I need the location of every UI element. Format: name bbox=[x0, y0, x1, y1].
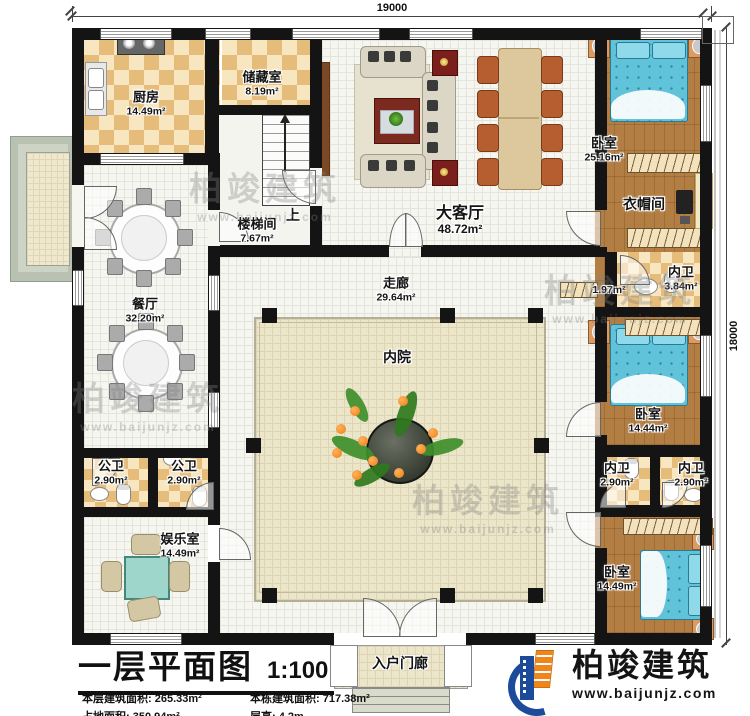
stat-item: 本栋建筑面积: 717.38m² bbox=[250, 690, 370, 706]
chair bbox=[165, 200, 181, 217]
dining-chair bbox=[477, 158, 499, 186]
game-table bbox=[124, 556, 170, 600]
sofa-cushion bbox=[368, 160, 379, 171]
room-name: 公卫 bbox=[94, 460, 127, 475]
stair-arrow-head bbox=[280, 114, 290, 123]
room-area: 14.49m² bbox=[597, 580, 636, 592]
wall bbox=[595, 307, 607, 402]
room-name: 卧室 bbox=[597, 566, 636, 581]
stair-up-label: 上 bbox=[286, 207, 300, 223]
room-label-bedroom-top: 卧室 25.16m² bbox=[584, 137, 623, 164]
wall bbox=[84, 448, 220, 458]
stat-label: 占地面积: bbox=[82, 711, 130, 716]
room-area: 2.90m² bbox=[600, 476, 633, 488]
corner-bracket bbox=[702, 16, 734, 44]
chair bbox=[131, 534, 161, 555]
room-name: 卧室 bbox=[628, 408, 667, 423]
room-area: 2.90m² bbox=[674, 476, 707, 488]
wall bbox=[595, 40, 607, 210]
room-area: 1.97m² bbox=[592, 284, 625, 296]
window bbox=[209, 392, 219, 428]
room-area: 14.49m² bbox=[160, 547, 199, 559]
stair-up-text: 上 bbox=[286, 207, 300, 223]
room-label-kitchen: 厨房 14.49m² bbox=[126, 91, 165, 118]
stat-item: 层高: 4.2m bbox=[250, 708, 370, 716]
chair bbox=[97, 354, 113, 371]
room-name: 走廊 bbox=[376, 277, 415, 292]
dimension-top-value: 19000 bbox=[377, 2, 408, 14]
sofa-cushion bbox=[404, 160, 415, 171]
dining-chair bbox=[477, 56, 499, 84]
dining-chair bbox=[477, 90, 499, 118]
chair bbox=[136, 270, 152, 287]
toilet bbox=[116, 484, 131, 505]
room-label-courtyard: 内院 bbox=[383, 349, 411, 365]
sofa-cushion bbox=[427, 122, 438, 133]
stat-label: 层高: bbox=[250, 711, 276, 716]
porch-pier-right bbox=[444, 645, 472, 687]
brand-logo: 柏竣建筑 www.baijunjz.com bbox=[508, 644, 717, 706]
window bbox=[701, 545, 711, 607]
stat-item: 占地面积: 350.94m² bbox=[82, 708, 250, 716]
orange-fruit bbox=[394, 468, 404, 478]
sofa-cushion bbox=[368, 51, 379, 62]
room-label-bath-bottom-right: 内卫 2.90m² bbox=[674, 462, 707, 489]
room-area: 48.72m² bbox=[436, 223, 484, 237]
brand-url[interactable]: www.baijunjz.com bbox=[572, 685, 717, 701]
round-table-ring bbox=[121, 215, 167, 261]
dimension-right-value: 18000 bbox=[728, 321, 740, 352]
stat-label: 本栋建筑面积: bbox=[250, 693, 320, 705]
bed-sheet bbox=[611, 374, 685, 403]
sink bbox=[90, 487, 109, 501]
room-name: 内卫 bbox=[674, 462, 707, 477]
wall bbox=[605, 252, 617, 307]
column bbox=[528, 588, 543, 603]
chair bbox=[169, 561, 190, 592]
wall bbox=[219, 245, 389, 257]
stat-value: 717.38m² bbox=[323, 693, 370, 705]
orange-fruit bbox=[358, 436, 368, 446]
room-label-bath-bottom-left: 内卫 2.90m² bbox=[600, 462, 633, 489]
chair bbox=[179, 354, 195, 371]
room-area: 8.19m² bbox=[242, 85, 281, 97]
right-sill-line bbox=[714, 30, 716, 638]
room-name: 楼梯间 bbox=[237, 218, 276, 233]
window bbox=[701, 85, 711, 142]
column bbox=[262, 588, 277, 603]
room-label-stairwell: 楼梯间 7.67m² bbox=[237, 218, 276, 245]
kitchen-sink bbox=[88, 68, 104, 88]
brand-name: 柏竣建筑 bbox=[572, 649, 717, 681]
column bbox=[528, 308, 543, 323]
chair bbox=[107, 258, 123, 275]
orange-fruit bbox=[416, 444, 426, 454]
pillow bbox=[652, 42, 686, 59]
long-dining-table bbox=[498, 48, 542, 190]
dining-chair bbox=[541, 56, 563, 84]
orange-fruit bbox=[352, 470, 362, 480]
wall bbox=[205, 40, 219, 153]
room-label-dining: 餐厅 32.20m² bbox=[125, 298, 164, 325]
room-name: 餐厅 bbox=[125, 298, 164, 313]
kitchen-sink bbox=[88, 90, 104, 110]
chair bbox=[109, 383, 125, 400]
window bbox=[701, 335, 711, 397]
plan-title: 一层平面图 bbox=[78, 640, 253, 688]
column bbox=[246, 438, 261, 453]
room-area: 2.90m² bbox=[94, 474, 127, 486]
window bbox=[100, 29, 172, 39]
cloak-wardrobe-item2 bbox=[680, 216, 690, 224]
chair bbox=[177, 229, 193, 246]
column bbox=[440, 308, 455, 323]
room-label-public-bath-right: 公卫 2.90m² bbox=[167, 460, 200, 487]
orange-fruit bbox=[336, 424, 346, 434]
wall bbox=[72, 28, 84, 645]
sofa-cushion bbox=[427, 142, 438, 153]
closet-bedroom-mid bbox=[625, 319, 711, 336]
chair bbox=[167, 325, 183, 342]
door-opening bbox=[72, 185, 84, 247]
room-area: 32.20m² bbox=[125, 312, 164, 324]
room-name: 公卫 bbox=[167, 460, 200, 475]
sofa-cushion bbox=[386, 160, 397, 171]
column bbox=[440, 588, 455, 603]
bed-sheet bbox=[611, 90, 685, 119]
wall bbox=[595, 307, 712, 317]
stair-arrow-line bbox=[284, 122, 286, 172]
stat-item: 本层建筑面积: 265.33m² bbox=[82, 690, 250, 706]
side-table-lamp bbox=[440, 168, 448, 176]
chair bbox=[109, 325, 125, 342]
orange-fruit bbox=[368, 456, 378, 466]
room-area: 29.64m² bbox=[376, 291, 415, 303]
room-name: 内院 bbox=[383, 349, 411, 365]
room-name: 内卫 bbox=[664, 266, 697, 281]
window bbox=[209, 275, 219, 311]
logo-building-windows-icon bbox=[523, 660, 526, 694]
chair bbox=[165, 258, 181, 275]
room-label-public-bath-left: 公卫 2.90m² bbox=[94, 460, 127, 487]
room-label-corridor: 走廊 29.64m² bbox=[376, 277, 415, 304]
patio-inner bbox=[26, 152, 70, 266]
room-name: 大客厅 bbox=[436, 205, 484, 223]
room-name: 娱乐室 bbox=[160, 533, 199, 548]
chair bbox=[136, 188, 152, 205]
stat-value: 4.2m bbox=[279, 711, 304, 716]
window bbox=[205, 29, 251, 39]
sofa-cushion bbox=[427, 100, 438, 111]
room-area: 14.44m² bbox=[628, 422, 667, 434]
logo-building-blue-icon bbox=[520, 656, 534, 700]
wall bbox=[310, 40, 322, 257]
closet-cloakroom-bottom bbox=[627, 228, 709, 248]
window bbox=[73, 270, 83, 306]
pillow bbox=[616, 42, 650, 59]
wall bbox=[595, 445, 712, 457]
dining-chair bbox=[541, 90, 563, 118]
room-label-porch: 入户门廊 bbox=[372, 655, 428, 671]
wall bbox=[219, 105, 310, 115]
pass-window bbox=[100, 154, 184, 164]
wall bbox=[208, 562, 220, 633]
window bbox=[409, 29, 473, 39]
room-area: 14.49m² bbox=[126, 105, 165, 117]
stat-value: 265.33m² bbox=[155, 693, 202, 705]
room-label-hall: 1.97m² bbox=[592, 284, 625, 296]
room-area: 25.16m² bbox=[584, 151, 623, 163]
room-area: 2.90m² bbox=[167, 474, 200, 486]
window bbox=[535, 634, 595, 644]
dining-chair bbox=[541, 158, 563, 186]
orange-fruit bbox=[332, 448, 342, 458]
plan-title-block: 一层平面图 1:100 bbox=[78, 640, 334, 695]
room-label-bath-right-top: 内卫 3.84m² bbox=[664, 266, 697, 293]
room-label-storage: 储藏室 8.19m² bbox=[242, 71, 281, 98]
side-table-lamp bbox=[440, 58, 448, 66]
orange-fruit bbox=[350, 406, 360, 416]
room-label-living: 大客厅 48.72m² bbox=[436, 205, 484, 237]
chair bbox=[101, 561, 122, 592]
orange-fruit bbox=[428, 428, 438, 438]
coffee-table-plant bbox=[389, 112, 403, 126]
room-area: 7.67m² bbox=[237, 232, 276, 244]
wall bbox=[650, 457, 660, 505]
floor-plan-page: 厨房 14.49m² 储藏室 8.19m² 楼梯间 7.67m² 上 大客厅 4… bbox=[0, 0, 750, 716]
orange-fruit bbox=[398, 396, 408, 406]
window bbox=[292, 29, 380, 39]
sofa-cushion bbox=[427, 80, 438, 91]
room-name: 内卫 bbox=[600, 462, 633, 477]
dining-chair bbox=[541, 124, 563, 152]
bed-sheet bbox=[641, 551, 667, 617]
right-sill-line2 bbox=[719, 30, 721, 638]
dining-chair bbox=[477, 124, 499, 152]
brand-logo-icon bbox=[508, 644, 564, 706]
stat-value: 350.94m² bbox=[133, 711, 180, 716]
plan-scale: 1:100 bbox=[267, 657, 328, 685]
sofa-cushion bbox=[384, 51, 395, 62]
dimension-top-line bbox=[72, 16, 712, 17]
stat-label: 本层建筑面积: bbox=[82, 693, 152, 705]
room-label-cloakroom: 衣帽间 bbox=[623, 196, 665, 212]
dining-table-seam bbox=[499, 117, 539, 119]
dimension-right-line bbox=[726, 28, 727, 645]
room-label-recreation: 娱乐室 14.49m² bbox=[160, 533, 199, 560]
brand-text: 柏竣建筑 www.baijunjz.com bbox=[572, 649, 717, 701]
wall bbox=[148, 458, 158, 507]
column bbox=[534, 438, 549, 453]
room-label-bedroom-bottom: 卧室 14.49m² bbox=[597, 566, 636, 593]
column bbox=[262, 308, 277, 323]
round-table-ring bbox=[123, 340, 169, 386]
chair bbox=[138, 395, 154, 412]
room-name: 储藏室 bbox=[242, 71, 281, 86]
window bbox=[640, 29, 702, 39]
cloak-wardrobe-item bbox=[676, 190, 693, 214]
room-name: 衣帽间 bbox=[623, 196, 665, 212]
room-label-bedroom-mid: 卧室 14.44m² bbox=[628, 408, 667, 435]
wall bbox=[421, 245, 600, 257]
room-area: 3.84m² bbox=[664, 280, 697, 292]
sofa-cushion bbox=[400, 51, 411, 62]
room-name: 卧室 bbox=[584, 137, 623, 152]
chair bbox=[167, 383, 183, 400]
room-name: 厨房 bbox=[126, 91, 165, 106]
plan-stats: 本层建筑面积: 265.33m² 本栋建筑面积: 717.38m² 占地面积: … bbox=[82, 690, 370, 716]
room-name: 入户门廊 bbox=[372, 655, 428, 671]
